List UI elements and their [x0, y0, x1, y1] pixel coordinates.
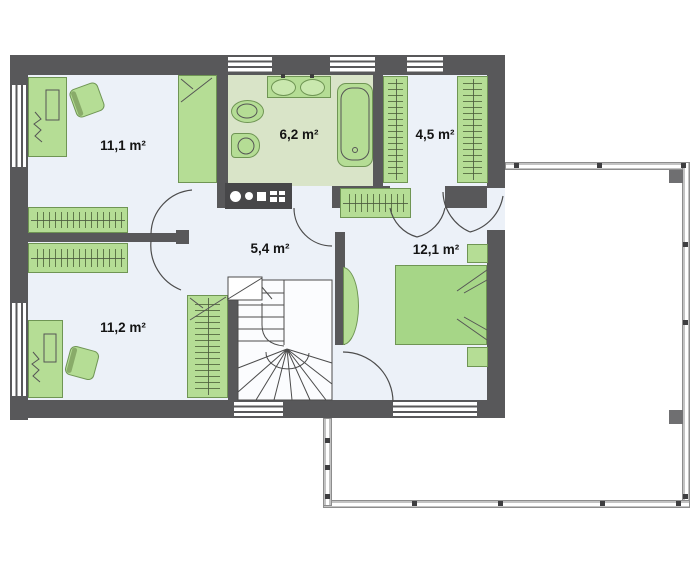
area-label-bedroom: 12,1 m²: [396, 242, 476, 257]
sink-icon-2: [300, 79, 325, 96]
area-label-bathroom: 6,2 m²: [259, 127, 339, 142]
railing-post: [597, 163, 602, 168]
wardrobe-room1-bottom: [28, 207, 128, 233]
terrace-railing-bottom: [323, 500, 690, 508]
desk-room1: [28, 77, 67, 157]
wall-partition-left: [10, 233, 177, 242]
wall-room1-bathroom: [217, 75, 228, 186]
nightstand-2: [467, 347, 488, 367]
terrace-pillar-mid: [669, 410, 683, 424]
area-label-hallway: 5,4 m²: [230, 241, 310, 256]
tap-icon-1: [281, 74, 285, 78]
railing-post: [412, 501, 417, 506]
area-label-room-lower-left: 11,2 m²: [83, 320, 163, 335]
bed-icon: [395, 265, 487, 345]
wardrobe-bedroom: [340, 188, 411, 218]
railing-post: [498, 501, 503, 506]
railing-post: [683, 242, 688, 247]
railing-post: [325, 465, 330, 470]
wall-room2-stairs: [228, 295, 238, 400]
railing-post: [600, 501, 605, 506]
wardrobe-room2-top: [28, 243, 128, 273]
area-label-room-upper-left: 11,1 m²: [83, 138, 163, 153]
terrace-railing-top: [505, 162, 685, 170]
railing-post: [683, 320, 688, 325]
terrace-door-threshold: [487, 188, 505, 230]
terrace-pillar-top: [669, 170, 683, 183]
terrace-railing-right: [682, 162, 690, 508]
vent-grid-icon: [270, 191, 285, 202]
laundry-appliances: [225, 183, 292, 209]
railing-post: [325, 494, 330, 499]
window-top-bathroom-2: [330, 57, 375, 73]
window-left-room1: [12, 85, 26, 167]
tap-icon-2: [310, 74, 314, 78]
window-top-bathroom-1: [228, 57, 272, 73]
wardrobe-room1-right: [178, 75, 217, 183]
railing-post: [681, 163, 686, 168]
appliance-square-icon: [257, 192, 266, 201]
window-left-room2: [12, 303, 26, 396]
window-top-closet: [407, 57, 443, 73]
dryer-icon: [245, 192, 253, 200]
wall-bathroom-closet: [373, 75, 383, 186]
bidet-icon: [231, 100, 264, 123]
terrace-railing-left: [323, 418, 332, 506]
railing-post: [683, 494, 688, 499]
sink-icon-1: [271, 79, 296, 96]
bathtub-icon: [337, 83, 373, 167]
washer-icon: [230, 191, 241, 202]
railing-post: [325, 438, 330, 443]
wall-closet-bottom: [445, 186, 487, 208]
toilet-icon: [231, 133, 260, 158]
window-bottom-bedroom: [393, 402, 477, 416]
area-label-closet: 4,5 m²: [395, 127, 475, 142]
railing-post: [676, 501, 681, 506]
window-bottom-stairs: [234, 402, 283, 416]
wall-partition-cap: [176, 230, 189, 244]
floor-plan: 11,1 m² 6,2 m² 4,5 m² 5,4 m² 12,1 m² 11,…: [0, 0, 700, 576]
wall-right-upper: [487, 55, 505, 188]
desk-room2: [28, 320, 63, 398]
railing-post: [514, 163, 519, 168]
wardrobe-room2-right: [187, 295, 228, 398]
wall-right-lower: [487, 230, 505, 418]
